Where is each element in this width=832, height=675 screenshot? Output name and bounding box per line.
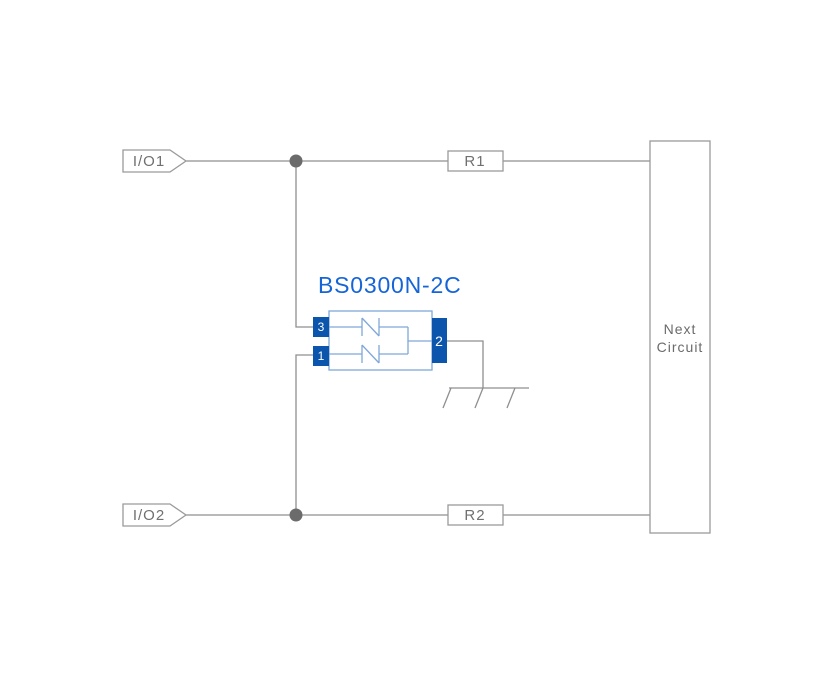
next-circuit-block: Next Circuit <box>650 141 710 533</box>
tvs-component: BS0300N-2C 3 1 2 <box>313 272 462 370</box>
resistor-r1: R1 <box>448 151 503 171</box>
next-circuit-line1: Next <box>664 321 697 337</box>
net-flag-io2: I/O2 <box>123 504 186 526</box>
pin-3-label: 3 <box>318 320 325 334</box>
circuit-schematic: I/O1 I/O2 R1 R2 Next Circuit BS0300N-2C … <box>0 0 832 675</box>
io2-label: I/O2 <box>133 507 165 524</box>
r1-label: R1 <box>464 153 485 170</box>
next-circuit-line2: Circuit <box>657 339 704 355</box>
io1-label: I/O1 <box>133 153 165 170</box>
wire-pin1-to-junction <box>296 355 313 515</box>
component-title: BS0300N-2C <box>318 272 462 298</box>
junction-dot-bottom <box>290 509 303 522</box>
junction-dot-top <box>290 155 303 168</box>
wire-junction-to-pin3 <box>296 161 313 327</box>
pin-1-label: 1 <box>318 349 325 363</box>
resistor-r2: R2 <box>448 505 503 525</box>
wire-pin2-to-ground <box>447 341 483 388</box>
next-circuit-box <box>650 141 710 533</box>
schematic-canvas: I/O1 I/O2 R1 R2 Next Circuit BS0300N-2C … <box>0 0 832 675</box>
net-flag-io1: I/O1 <box>123 150 186 172</box>
pin-2-label: 2 <box>435 333 443 349</box>
r2-label: R2 <box>464 507 485 524</box>
ground-icon <box>443 388 529 408</box>
ground-symbol <box>443 388 529 408</box>
